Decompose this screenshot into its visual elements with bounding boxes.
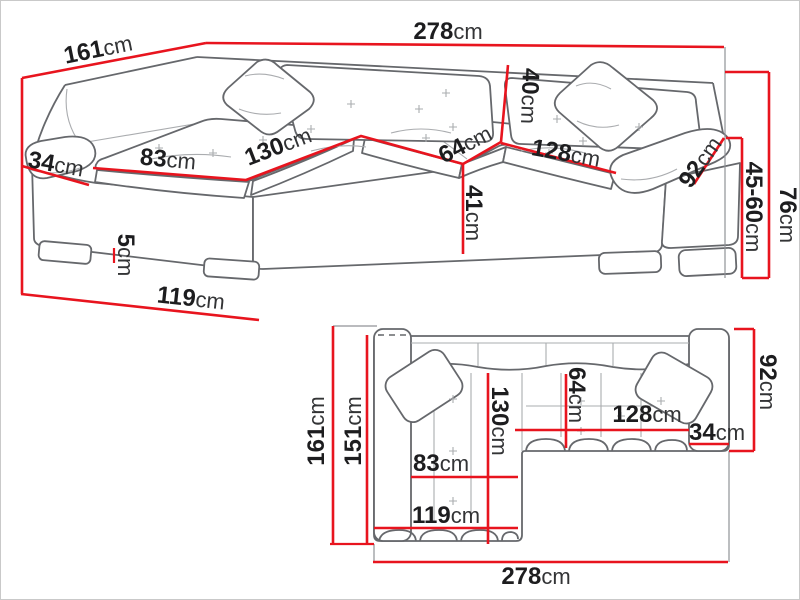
label-40: 40cm xyxy=(516,68,545,125)
leg-front-left xyxy=(38,241,91,264)
label-278: 278cm xyxy=(413,18,482,45)
plan-label-119: 119cm xyxy=(412,502,480,529)
label-83: 83cm xyxy=(139,143,197,175)
label-76: 76cm xyxy=(775,187,800,243)
label-5: 5cm xyxy=(113,234,140,277)
label-45-60: 45-60cm xyxy=(741,162,768,253)
leg-right-end xyxy=(678,248,736,277)
plan-label-83: 83cm xyxy=(413,450,469,477)
label-41: 41cm xyxy=(461,185,488,241)
leg-front-right xyxy=(599,251,662,274)
left-wall-inner-edge xyxy=(66,89,77,139)
right-wall-edge xyxy=(713,83,723,133)
leg-front-mid xyxy=(203,258,259,280)
plan-view: 161cm 151cm 130cm 64cm 128cm 34cm 92cm 8… xyxy=(303,326,782,590)
plan-left-armrest xyxy=(374,329,411,541)
plan-label-92: 92cm xyxy=(755,354,782,410)
plan-label-130: 130cm xyxy=(487,386,514,455)
dim-line-278 xyxy=(206,43,724,47)
plan-label-34: 34cm xyxy=(689,419,745,446)
plan-label-128: 128cm xyxy=(612,401,681,428)
plan-label-278: 278cm xyxy=(501,563,570,590)
diagram-canvas: 161cm 278cm 34cm 83cm 130cm 64cm 40cm 12… xyxy=(1,1,800,600)
plan-label-64: 64cm xyxy=(564,367,591,423)
sofa-dimension-diagram: 161cm 278cm 34cm 83cm 130cm 64cm 40cm 12… xyxy=(0,0,800,600)
plan-label-161: 161cm xyxy=(303,396,330,465)
plan-label-151: 151cm xyxy=(340,396,367,465)
perspective-view: 161cm 278cm 34cm 83cm 130cm 64cm 40cm 12… xyxy=(21,18,800,321)
